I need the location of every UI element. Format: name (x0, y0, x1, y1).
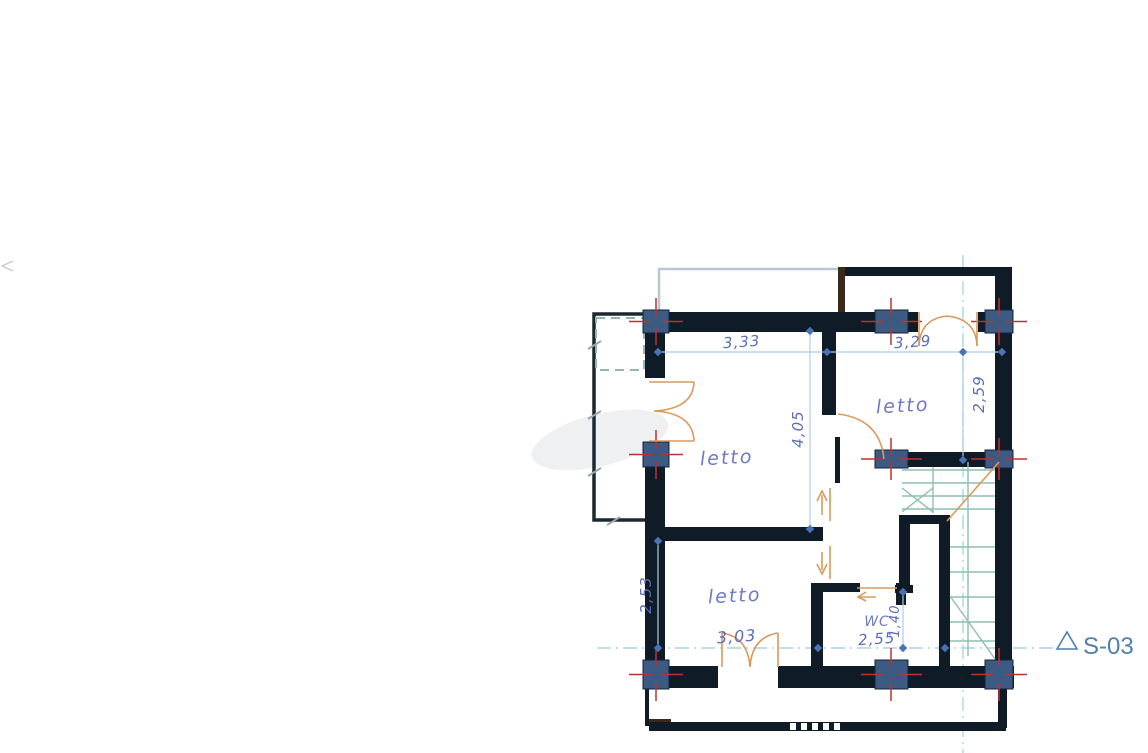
section-marker-label: S-03 (1083, 633, 1134, 660)
dim-right-room-height: 2,59 (970, 375, 988, 412)
room-label-bedroom-bottom: letto (707, 584, 762, 609)
room-label-bedroom-right: letto (875, 394, 930, 419)
dim-top-left-width: 3,33 (722, 332, 761, 353)
room-label-wc: WC (864, 614, 890, 630)
dim-left-room-height: 4,05 (789, 410, 807, 447)
room-label-bedroom-left: letto (699, 446, 754, 471)
dim-bottom-room-width: 3,03 (716, 626, 757, 648)
dim-top-right-width: 3,29 (893, 332, 932, 353)
floor-plan-drawing: 3,33 3,29 4,05 2,59 2,53 3,03 2,55 1,40 … (0, 0, 1148, 753)
dim-wc-depth: 1,40 (888, 605, 903, 638)
dim-bottom-room-height: 2,53 (637, 576, 655, 613)
